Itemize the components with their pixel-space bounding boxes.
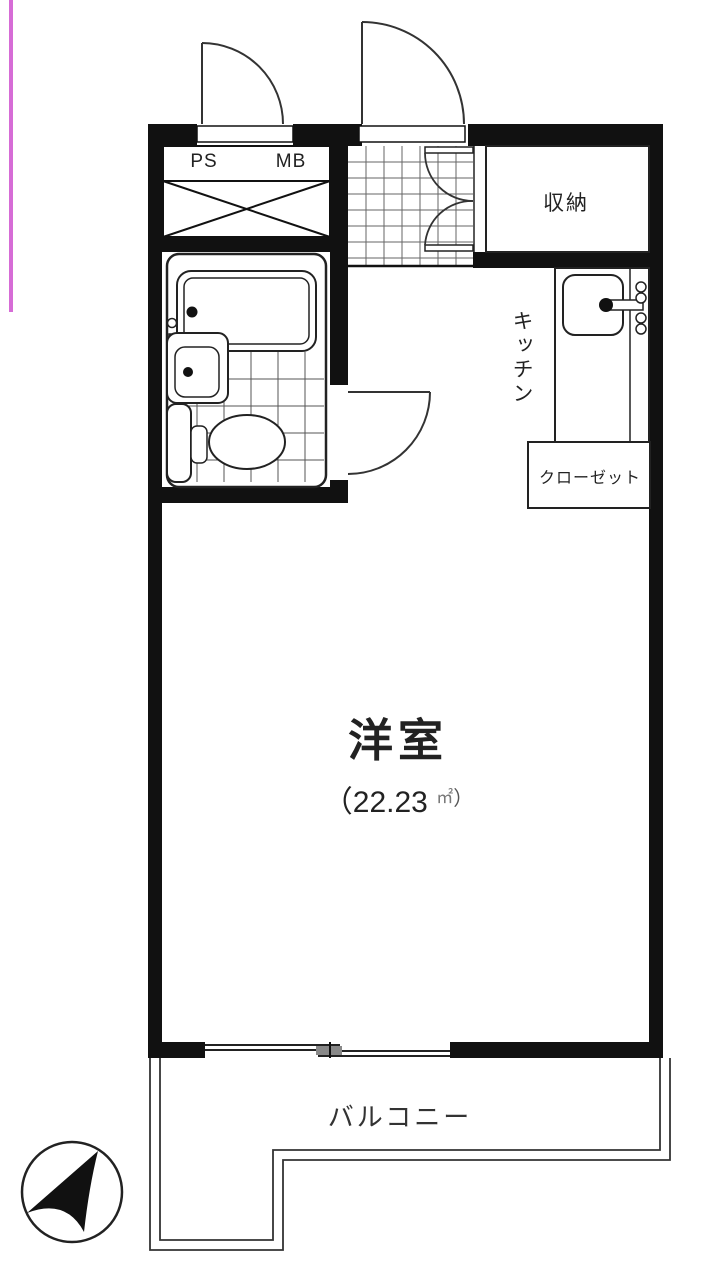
balcony-outline <box>150 1058 670 1250</box>
faucet-knob <box>636 324 646 334</box>
balcony-outer-line <box>150 1058 670 1250</box>
wall-top-mid <box>293 124 362 146</box>
wall-storage-bottom <box>473 252 663 268</box>
area-unit: ㎡ <box>436 788 453 807</box>
entrance-door <box>359 22 465 142</box>
basin-faucet-knob <box>168 319 177 328</box>
wall-bath-bottom <box>148 487 348 503</box>
toilet-seat-hinge <box>191 426 207 463</box>
service-door-panel <box>197 126 293 142</box>
bathroom-door <box>348 392 430 474</box>
faucet-knob <box>636 313 646 323</box>
entrance-door-arc <box>362 22 464 124</box>
basin-drain <box>183 367 193 377</box>
faucet-knob <box>636 282 646 292</box>
entrance-door-panel <box>359 126 465 142</box>
storage-door-arc-bottom <box>425 201 473 245</box>
north-arrow <box>27 1151 98 1232</box>
faucet-base <box>599 298 613 312</box>
closet-label: クローゼット <box>539 464 641 488</box>
floor-plan-graphic <box>0 0 728 1280</box>
wall-bottom-right <box>450 1042 663 1058</box>
room-area-label: （22.23 ㎡） <box>323 777 473 821</box>
wall-bath-right-upper <box>330 140 348 385</box>
mb-label: MB <box>276 151 307 173</box>
storage-door-leaf-bottom <box>425 245 473 251</box>
service-door <box>197 43 293 142</box>
area-paren-close: ） <box>453 788 473 810</box>
room-name-label: 洋室 <box>348 704 448 769</box>
tile-lines-horizontal <box>348 162 473 258</box>
faucet-knob <box>636 293 646 303</box>
area-paren-open: （ <box>323 786 353 819</box>
wall-bottom-left <box>148 1042 205 1058</box>
toilet-bowl <box>209 415 285 469</box>
unit-bath <box>167 254 326 487</box>
storage-door-leaf-top <box>425 147 473 153</box>
bathtub-drain <box>187 307 198 318</box>
wall-top-right <box>468 124 663 146</box>
wall-left <box>148 124 162 1058</box>
ps-label: PS <box>190 151 217 173</box>
compass-icon <box>22 1142 122 1242</box>
bathroom-door-arc <box>348 392 430 474</box>
storage-label: 収納 <box>543 187 589 217</box>
toilet-tank <box>167 404 191 482</box>
floor-plan: PS MB 収納 キッチン クローゼット 洋室 （22.23 ㎡） バルコニー <box>0 0 728 1280</box>
storage-double-door <box>425 147 473 251</box>
balcony-inner-line <box>160 1058 660 1240</box>
area-value: 22.23 <box>353 786 428 819</box>
basin-bowl <box>175 347 219 397</box>
service-door-arc <box>202 43 283 124</box>
sliding-window <box>205 1042 450 1058</box>
kitchen-label: キッチン <box>506 310 536 406</box>
balcony-label: バルコニー <box>328 1097 472 1134</box>
scan-artifact-line <box>9 0 13 312</box>
